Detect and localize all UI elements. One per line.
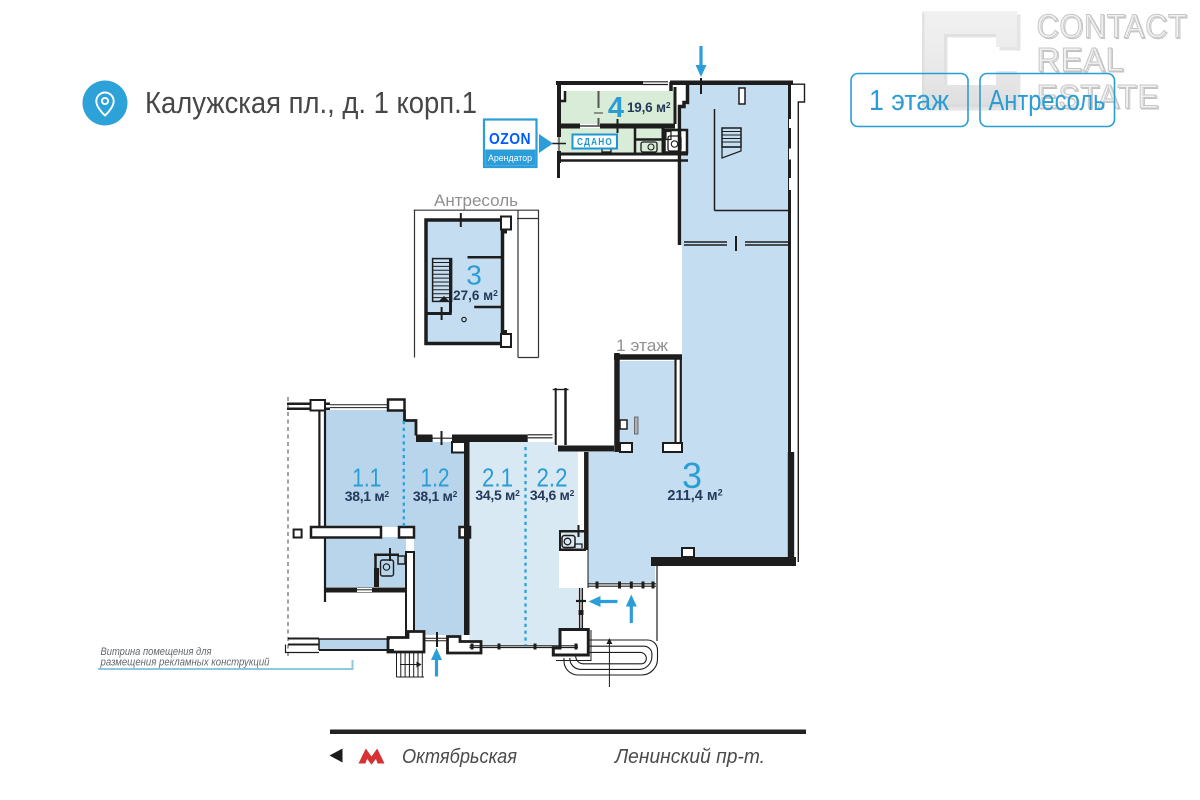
svg-text:3: 3	[466, 260, 482, 291]
svg-text:размещения рекламных конструкц: размещения рекламных конструкций	[100, 657, 270, 669]
svg-text:OZON: OZON	[489, 131, 531, 148]
svg-text:34,6 м2: 34,6 м2	[530, 487, 575, 503]
svg-text:1 этаж: 1 этаж	[616, 336, 669, 355]
svg-text:Арендатор: Арендатор	[488, 153, 532, 164]
svg-text:Антресоль: Антресоль	[434, 191, 518, 210]
svg-text:27,6 м2: 27,6 м2	[453, 288, 498, 303]
svg-text:Октябрьская: Октябрьская	[402, 746, 517, 768]
svg-text:211,4 м2: 211,4 м2	[667, 488, 722, 505]
svg-text:38,1 м2: 38,1 м2	[345, 488, 390, 504]
svg-text:СДАНО: СДАНО	[577, 136, 613, 148]
svg-text:4: 4	[608, 92, 624, 124]
svg-text:Ленинский пр-т.: Ленинский пр-т.	[613, 746, 765, 768]
svg-text:Антресоль: Антресоль	[989, 85, 1106, 117]
svg-text:CONTACT: CONTACT	[1037, 9, 1188, 46]
svg-text:Калужская пл., д. 1 корп.1: Калужская пл., д. 1 корп.1	[145, 85, 477, 120]
svg-text:19,6 м2: 19,6 м2	[627, 100, 671, 115]
svg-text:38,1 м2: 38,1 м2	[413, 488, 458, 504]
svg-text:1 этаж: 1 этаж	[869, 85, 950, 117]
svg-text:34,5 м2: 34,5 м2	[475, 487, 520, 503]
